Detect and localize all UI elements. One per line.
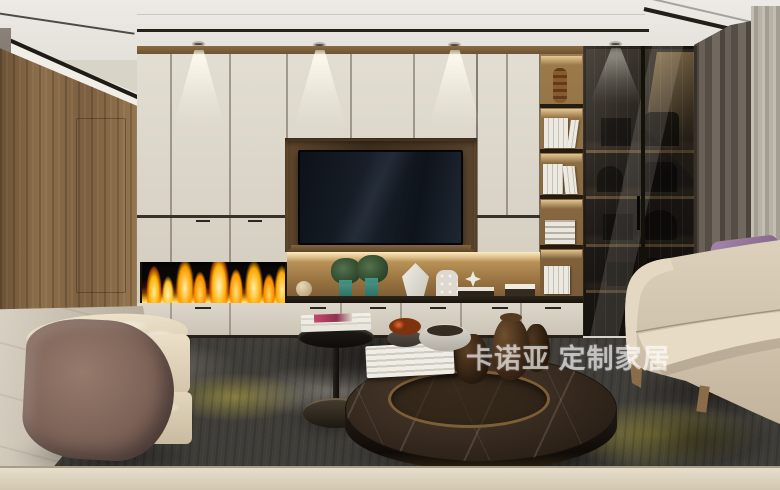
shelf-led-glow — [541, 250, 582, 259]
shelf-board — [540, 195, 583, 199]
cabinet-handle — [196, 220, 210, 222]
drawer-handle — [195, 307, 211, 309]
niche-led-glow — [287, 252, 583, 262]
sofa-leg — [696, 385, 710, 412]
book-stack — [545, 220, 575, 244]
cabinet-seam — [229, 54, 231, 262]
decor-ball — [296, 281, 312, 297]
counter-top — [287, 296, 583, 303]
living-room-render: 卡诺亚 定制家居 — [0, 0, 780, 490]
jar-lip — [500, 313, 522, 322]
ceiling-reveal-line — [137, 29, 649, 32]
ceiling-step-line — [137, 14, 645, 15]
linear-fireplace — [140, 262, 287, 303]
tv-reflection — [316, 152, 436, 242]
hidden-door-seam — [76, 118, 126, 293]
drawer-handle — [370, 307, 386, 309]
shelf-board — [540, 104, 583, 108]
book-row — [543, 164, 563, 194]
drawer-handle — [310, 307, 326, 309]
shelf-led-glow — [541, 109, 582, 118]
shelf-led-glow — [541, 56, 582, 65]
brand-watermark: 卡诺亚 定制家居 — [466, 337, 686, 377]
cabinet-seam-horizontal — [137, 215, 287, 218]
drawer-handle — [430, 307, 446, 309]
drawer-handle — [492, 307, 508, 309]
orange-blooms — [389, 318, 421, 335]
bowl-contents — [427, 325, 463, 336]
cabinet-seam — [413, 54, 415, 138]
glass-door-handle — [637, 196, 640, 230]
book-row — [544, 266, 570, 294]
cabinet-seam-horizontal — [477, 215, 540, 218]
book-row — [544, 118, 568, 148]
cabinet-handle — [248, 220, 262, 222]
shelf-led-glow — [541, 200, 582, 209]
shelf-board — [540, 149, 583, 153]
drawer-seam — [229, 303, 231, 335]
cabinet-seam — [286, 54, 288, 138]
white-textured-vase — [436, 270, 458, 299]
magazine-cover — [314, 313, 352, 322]
foreground-table-edge — [0, 466, 780, 490]
cabinet-seam — [350, 54, 352, 138]
shelf-led-glow — [541, 154, 582, 163]
wood-sculpture — [553, 68, 567, 103]
fireplace-flames — [142, 262, 285, 303]
cabinet-seam — [506, 54, 508, 215]
cabinet-seam — [170, 54, 172, 262]
drawer-handle — [545, 307, 561, 309]
shelf-board — [540, 245, 583, 249]
tv-recess-ledge — [291, 245, 471, 252]
